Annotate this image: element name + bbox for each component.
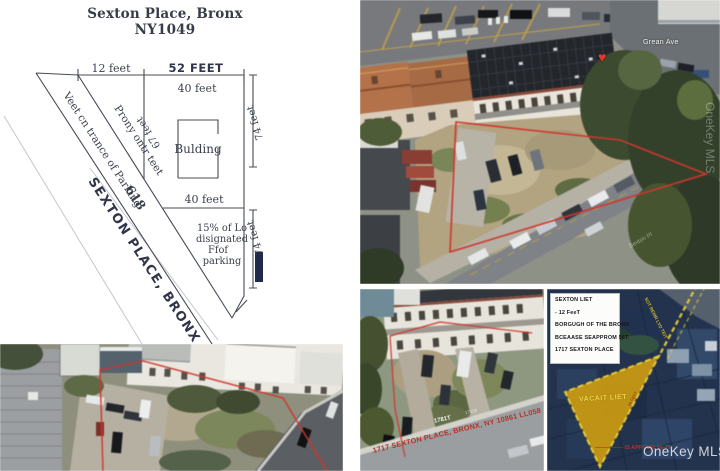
- parking-note: 15% of Lo disignated Ffof parking: [196, 223, 248, 267]
- small-white-roof: [394, 289, 420, 305]
- heart-marker-icon: ♥: [598, 50, 606, 64]
- aerial-photo-backyard-image: [0, 344, 343, 471]
- map-info-line: BCEAASE SEAPPROM 56T.: [555, 336, 617, 341]
- svg-text:Ffof: Ffof: [208, 245, 229, 256]
- aerial-photo-backyard: [0, 344, 343, 471]
- dim-52-feet: 52 FEET: [169, 61, 224, 75]
- diagram-title-line1: Sexton Place, Bronx: [0, 6, 330, 22]
- blue-house: [360, 289, 394, 317]
- aerial-photo-side: 17118 1781T 1717 SEXTON PLACE, BRONX, NY…: [360, 289, 544, 471]
- watermark-onekey-mls: OneKey MLS: [643, 445, 720, 459]
- lot-diagram-panel: Sexton Place, Bronx NY1049: [0, 0, 357, 344]
- diagram-title-line2: NY1049: [0, 22, 330, 38]
- page-title: Sexton Place, Bronx NY1049: [0, 6, 330, 38]
- dim-74-feet-upper: 74 feet: [245, 104, 266, 141]
- street-sign-label: Grean Ave: [643, 39, 679, 46]
- map-info-line: - 12 FeeT: [555, 311, 617, 316]
- building-label: Bulding: [174, 142, 222, 156]
- dim-74-feet-lower: 74 feet: [245, 219, 266, 256]
- lot-boundary-lines: [36, 69, 257, 344]
- map-info-line: 1717 SEXTON PLACE: [555, 348, 617, 353]
- svg-text:disignated: disignated: [196, 234, 248, 245]
- map-info-line: SEXTON LIET: [555, 298, 617, 303]
- map-info-box: SEXTON LIET - 12 FeeT BORGUGH OF THE BRO…: [550, 293, 620, 364]
- watermark-onekey-mls-vertical: OneKey MLS: [704, 102, 716, 173]
- listing-photo-collage: Sexton Place, Bronx NY1049: [0, 0, 720, 471]
- dim-12-feet: 12 feet: [91, 62, 131, 75]
- map-info-line: BORGUGH OF THE BRONX: [555, 323, 617, 328]
- map-inset-panel: SEXTON LIET - 12 FeeT BORGUGH OF THE BRO…: [547, 289, 720, 471]
- dim-40-feet-top: 40 feet: [177, 82, 217, 95]
- dim-40-feet-bottom: 40 feet: [184, 193, 224, 206]
- svg-text:15% of Lo: 15% of Lo: [197, 223, 247, 234]
- aerial-photo-main: Grean Ave Sexton Pl ♥: [360, 0, 720, 284]
- svg-text:parking: parking: [203, 256, 241, 267]
- lot-diagram-drawing: 12 feet 52 FEET 40 feet 40 feet 74 feet …: [0, 0, 357, 344]
